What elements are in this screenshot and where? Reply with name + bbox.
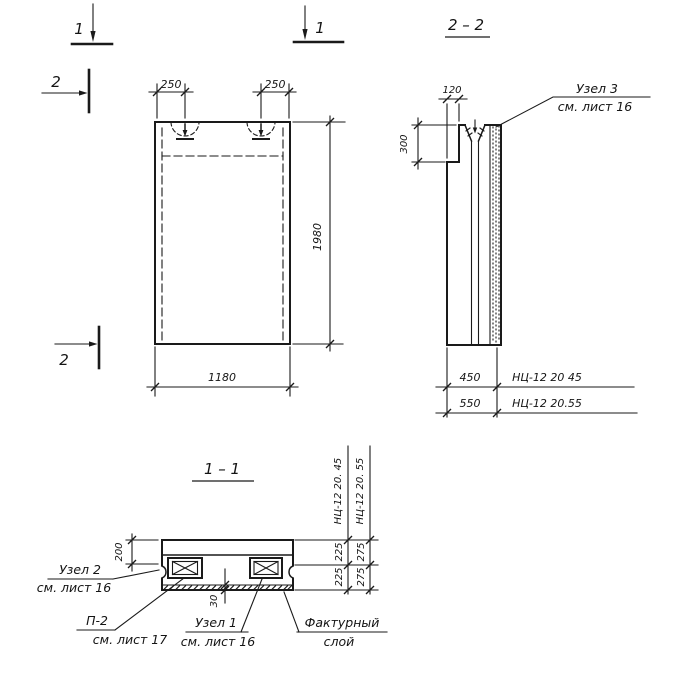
technical-drawing-sheet: 1 1 2 2 xyxy=(0,0,700,700)
panel-outline xyxy=(155,122,290,344)
section-1-1-view: 1 – 1 xyxy=(37,446,387,649)
dim-1980-height: 1980 xyxy=(293,116,345,351)
dim-250-right: 250 xyxy=(253,78,296,118)
dim-1180-width: 1180 xyxy=(147,347,298,396)
callout-node1-title: Узел 1 xyxy=(195,615,237,630)
callout-node3-title: Узел 3 xyxy=(576,81,618,96)
callout-node2-title: Узел 2 xyxy=(59,562,101,577)
callout-p2-ref: см. лист 17 xyxy=(93,632,167,647)
dim-120-value: 120 xyxy=(442,85,461,96)
panel-drawing-svg: 1 1 2 2 xyxy=(0,0,700,700)
callout-facing-title: Фактурный xyxy=(305,615,380,630)
variant-dim-rows: 450 НЦ-12 20 45 550 НЦ-12 20.55 xyxy=(436,348,637,417)
section-marker-1-left: 1 xyxy=(72,4,112,44)
callout-p2-title: П-2 xyxy=(86,613,108,628)
column2-dim-bottom: 275 xyxy=(356,567,367,586)
callout-node1-ref: см. лист 16 xyxy=(181,634,255,649)
callout-node2: Узел 2 см. лист 16 xyxy=(37,562,159,595)
column2-mark: НЦ-12 20. 55 xyxy=(355,458,366,525)
section-1-1-title: 1 – 1 xyxy=(204,460,240,478)
cut-arrow-right-icon xyxy=(79,90,88,95)
column1-mark: НЦ-12 20. 45 xyxy=(333,458,344,525)
callout-node3: Узел 3 см. лист 16 xyxy=(496,81,650,127)
marker-1-right-label: 1 xyxy=(315,19,325,37)
dim-1180-value: 1180 xyxy=(208,371,236,384)
callout-node2-ref: см. лист 16 xyxy=(37,580,111,595)
marker-2-top-label: 2 xyxy=(51,73,61,91)
section-2-2-view: 2 – 2 120 300 xyxy=(399,16,650,417)
elevation-view: 250 250 1180 1980 xyxy=(147,78,345,396)
thickness-dim-columns: НЦ-12 20. 45 НЦ-12 20. 55 225 225 275 27… xyxy=(295,446,378,594)
callout-node3-ref: см. лист 16 xyxy=(558,99,632,114)
dim-300-value: 300 xyxy=(399,134,410,153)
column2-dim-top: 275 xyxy=(356,542,367,561)
dim-250-right-value: 250 xyxy=(265,78,286,91)
variant1-width: 450 xyxy=(460,371,481,384)
dim-250-left-value: 250 xyxy=(161,78,182,91)
dim-250-left: 250 xyxy=(149,78,193,118)
callout-facing-layer: Фактурный слой xyxy=(284,592,387,649)
cut-arrow-right-icon xyxy=(89,341,98,346)
dim-1980-value: 1980 xyxy=(311,223,324,251)
marker-1-left-label: 1 xyxy=(74,20,84,38)
cut-arrow-down-icon xyxy=(302,29,307,40)
marker-2-bottom-label: 2 xyxy=(59,351,69,369)
section-marker-1-right: 1 xyxy=(294,6,343,42)
cut-arrow-down-icon xyxy=(90,31,95,42)
dim-30-value: 30 xyxy=(209,595,220,608)
section-2-2-title: 2 – 2 xyxy=(448,16,484,34)
dim-200-value: 200 xyxy=(114,542,125,561)
dim-200-top: 200 xyxy=(114,534,158,571)
section-marker-2-bottom: 2 xyxy=(55,327,99,369)
section-marker-2-top: 2 xyxy=(42,70,89,112)
column1-dim-top: 225 xyxy=(334,542,345,561)
callout-facing-ref: слой xyxy=(324,634,355,649)
variant2-width: 550 xyxy=(460,397,481,410)
variant2-mark: НЦ-12 20.55 xyxy=(512,397,582,410)
column1-dim-bottom: 225 xyxy=(334,567,345,586)
variant1-mark: НЦ-12 20 45 xyxy=(512,371,582,384)
